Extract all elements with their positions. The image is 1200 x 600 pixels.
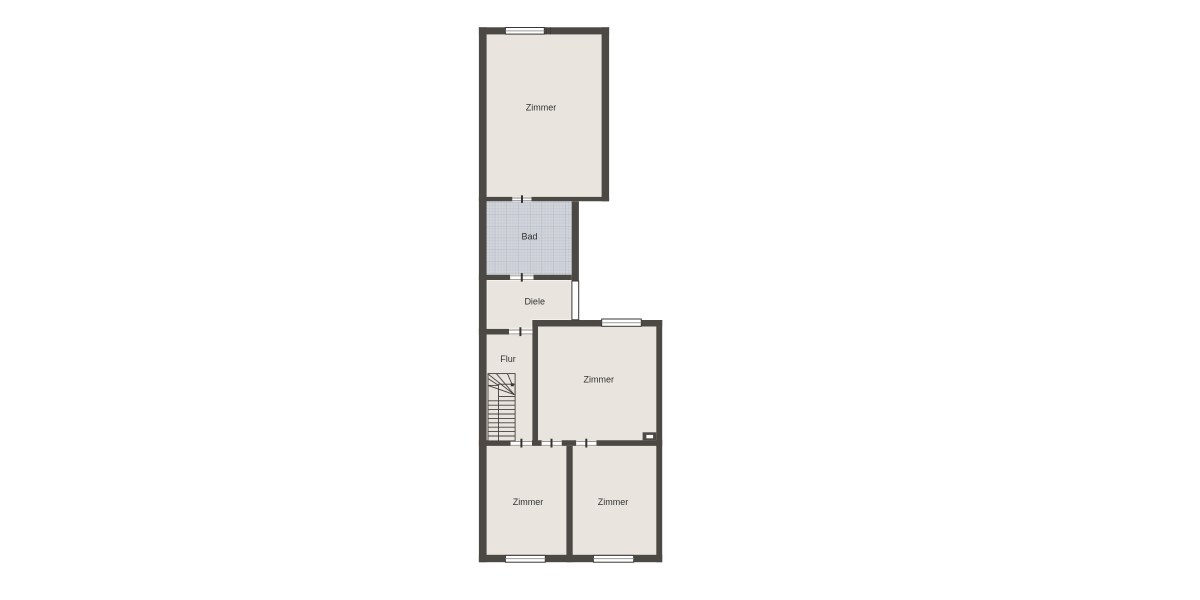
svg-text:Diele: Diele [524,297,545,307]
svg-text:Zimmer: Zimmer [598,497,629,507]
svg-text:Zimmer: Zimmer [513,497,544,507]
svg-text:Zimmer: Zimmer [584,375,615,385]
svg-text:Flur: Flur [500,354,516,364]
svg-text:Bad: Bad [521,232,537,242]
svg-text:Zimmer: Zimmer [526,102,557,112]
